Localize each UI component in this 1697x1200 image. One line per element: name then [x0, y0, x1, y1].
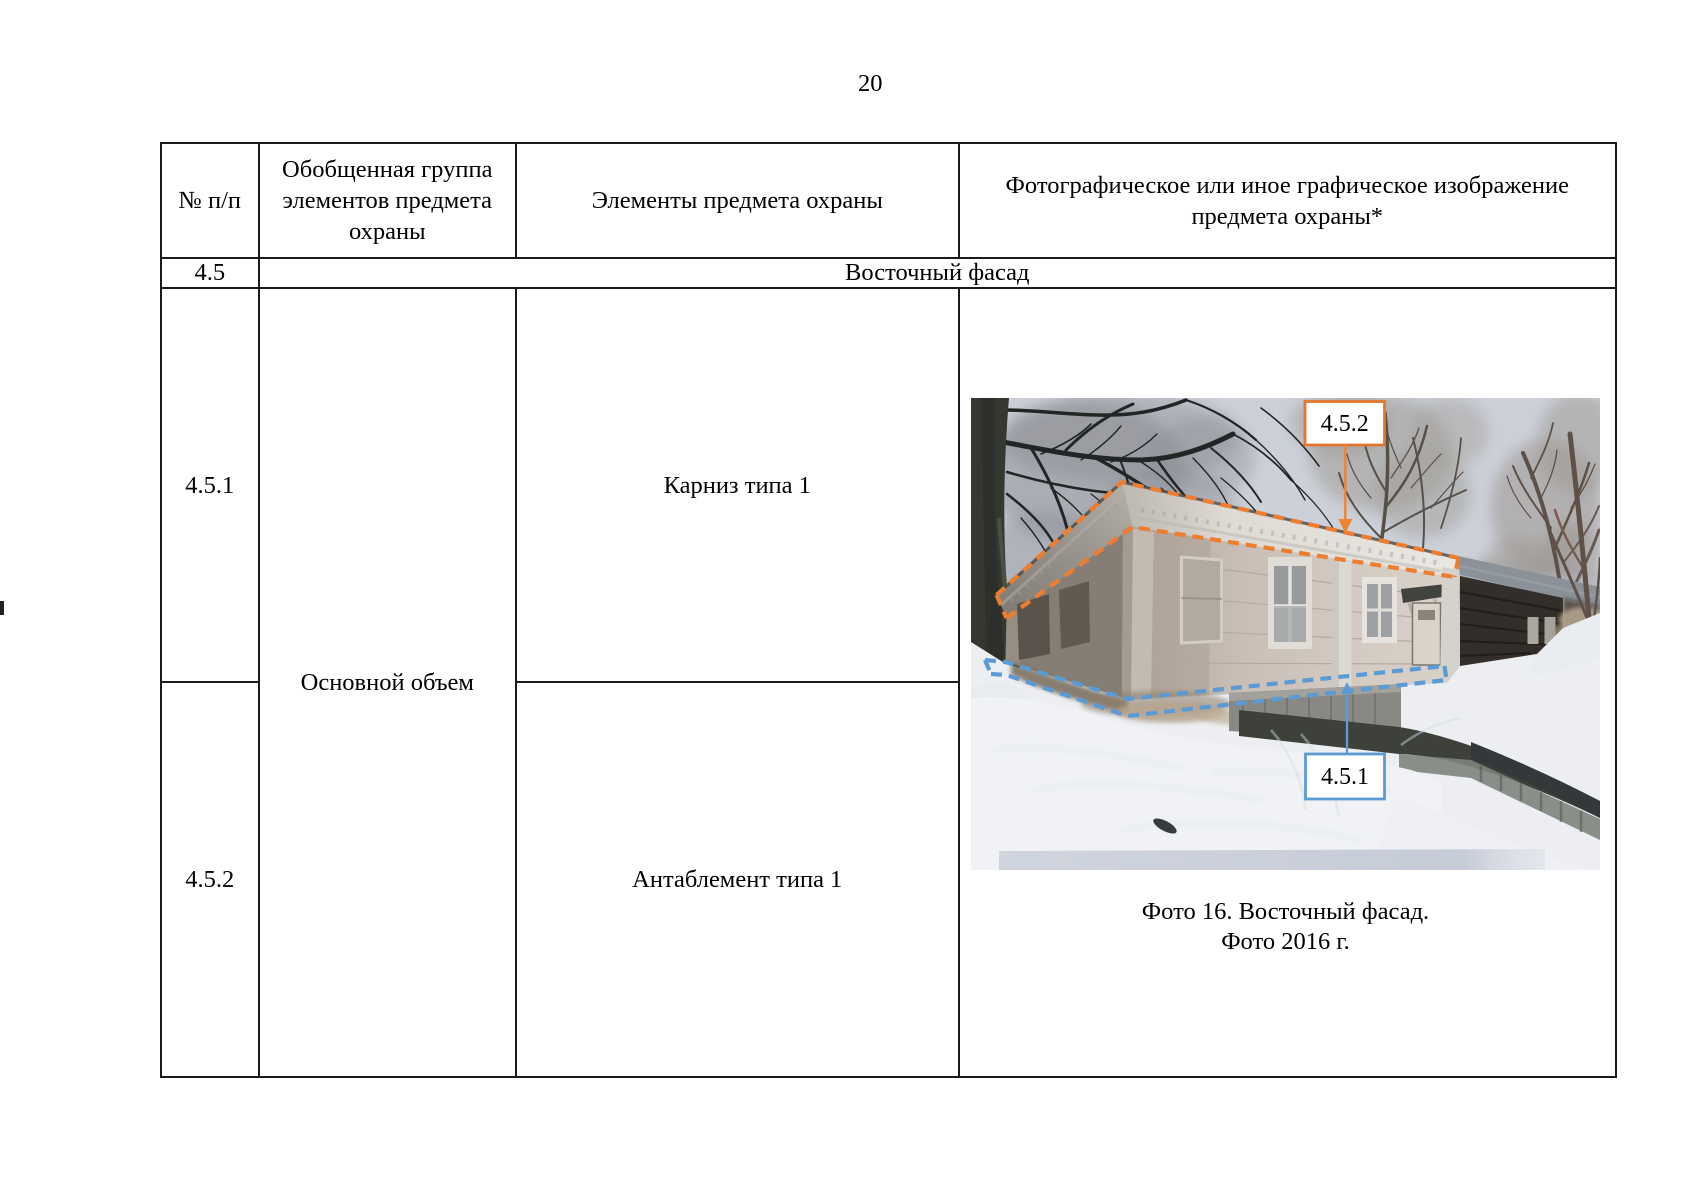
svg-text:4.5.2: 4.5.2 — [1321, 411, 1369, 437]
svg-text:4.5.1: 4.5.1 — [1321, 764, 1369, 790]
